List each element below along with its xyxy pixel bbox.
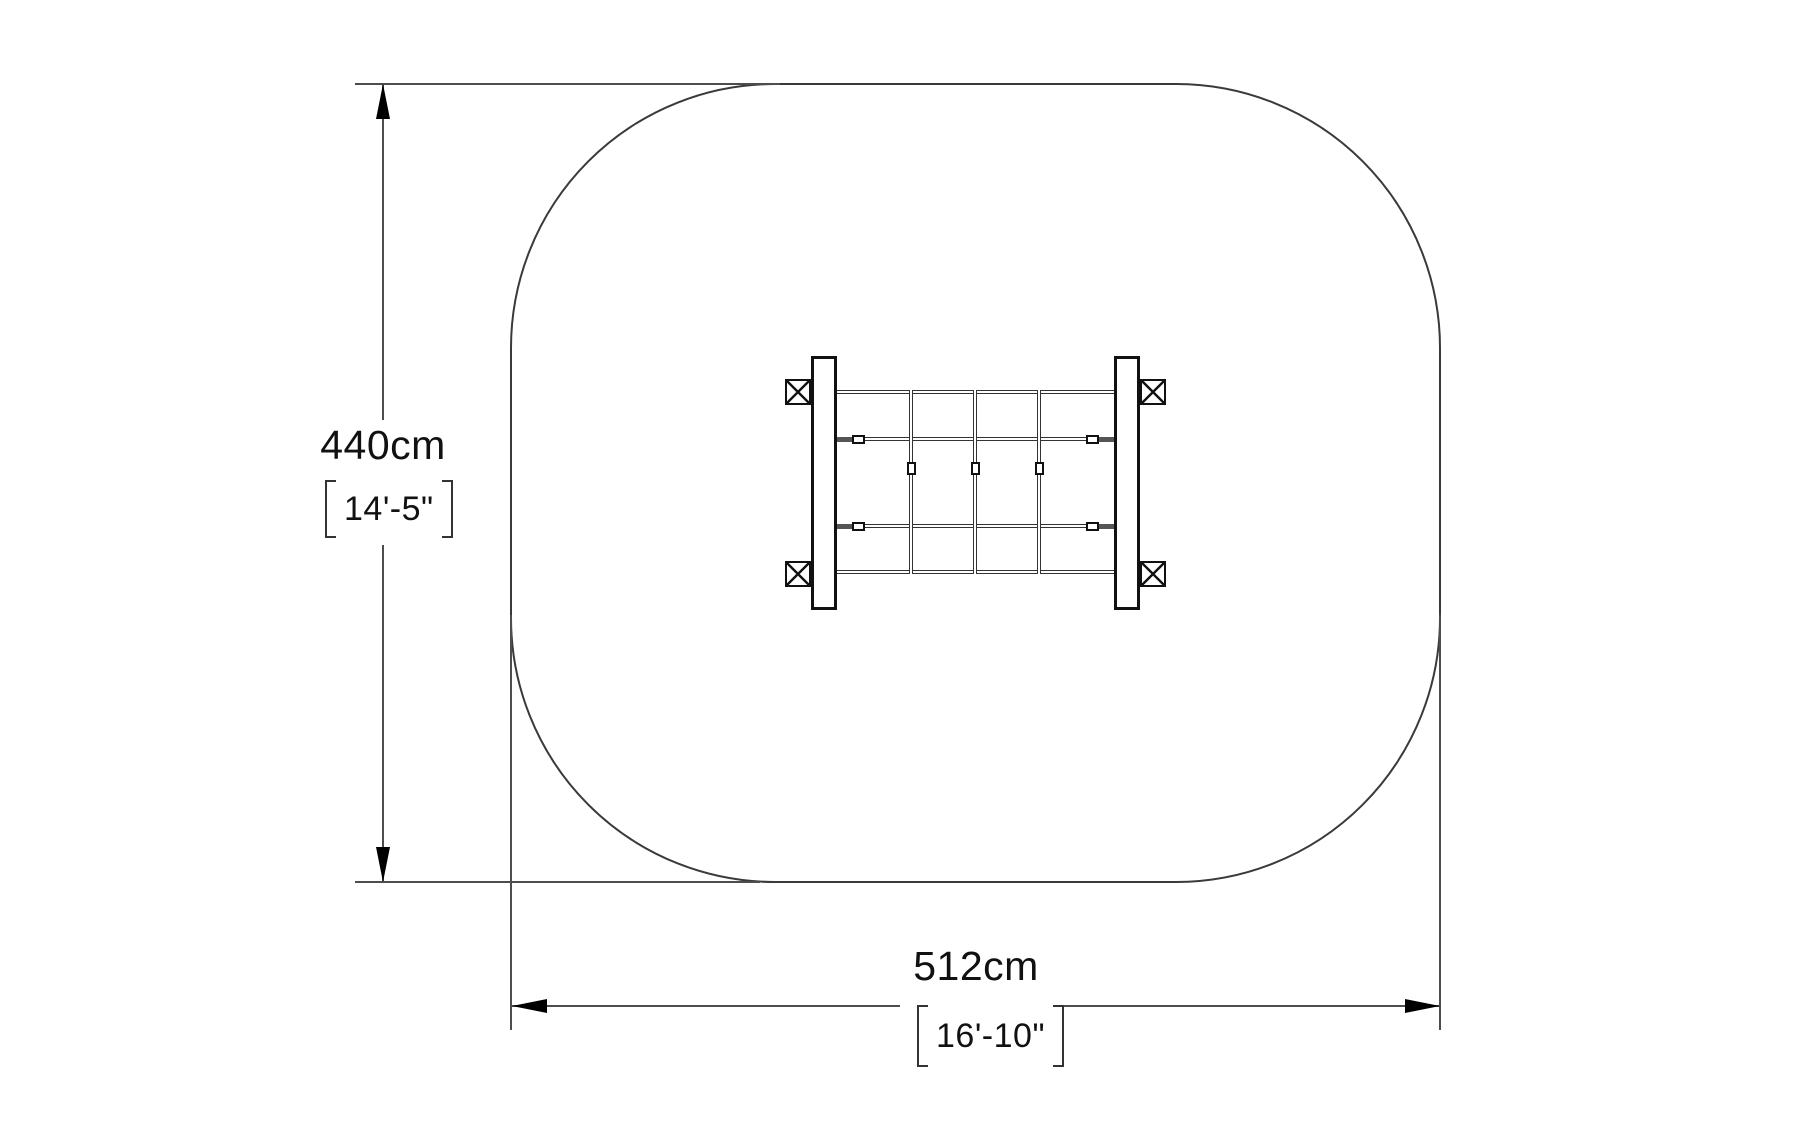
turnbuckle xyxy=(1086,522,1099,531)
height-metric-label: 440cm xyxy=(263,424,503,466)
width-metric-label: 512cm xyxy=(856,945,1096,987)
right-bracket xyxy=(1053,1005,1064,1067)
turnbuckle xyxy=(852,435,865,444)
width-imperial-label: 16'-10" xyxy=(917,1005,1064,1067)
width-dimension-line-right xyxy=(1053,1005,1440,1007)
ground-anchor-icon xyxy=(785,561,811,587)
height-imperial-label: 14'-5" xyxy=(325,480,453,538)
support-beam-right xyxy=(1114,356,1140,610)
rope-end-stub xyxy=(1098,437,1114,442)
ground-anchor-icon xyxy=(1140,561,1166,587)
arrow-right-icon xyxy=(1405,999,1440,1013)
extension-line-left xyxy=(510,615,512,1030)
height-imperial-text: 14'-5" xyxy=(336,480,442,538)
left-bracket xyxy=(917,1005,928,1067)
rope-end-stub xyxy=(1098,524,1114,529)
ground-anchor-icon xyxy=(785,379,811,405)
extension-line-top xyxy=(355,83,780,85)
turnbuckle xyxy=(852,522,865,531)
height-dimension-line-lower xyxy=(382,545,384,882)
net-rope-vertical xyxy=(909,390,913,574)
left-bracket xyxy=(325,480,336,538)
extension-line-bottom xyxy=(355,881,760,883)
rope-end-stub xyxy=(837,437,853,442)
right-bracket xyxy=(442,480,453,538)
width-dimension-line-left xyxy=(512,1005,900,1007)
turnbuckle xyxy=(1086,435,1099,444)
turnbuckle xyxy=(1035,462,1044,475)
net-rope-vertical xyxy=(973,390,977,574)
rope-end-stub xyxy=(837,524,853,529)
turnbuckle xyxy=(907,462,916,475)
plan-view-canvas: 440cm 14'-5" 512cm 16'-10" xyxy=(0,0,1800,1125)
arrow-up-icon xyxy=(376,84,390,119)
height-dimension-line-upper xyxy=(382,85,384,420)
width-imperial-text: 16'-10" xyxy=(928,1005,1053,1067)
net-rope-vertical xyxy=(1037,390,1041,574)
turnbuckle xyxy=(971,462,980,475)
arrow-down-icon xyxy=(376,847,390,882)
ground-anchor-icon xyxy=(1140,379,1166,405)
extension-line-right xyxy=(1439,615,1441,1030)
support-beam-left xyxy=(811,356,837,610)
arrow-left-icon xyxy=(512,999,547,1013)
